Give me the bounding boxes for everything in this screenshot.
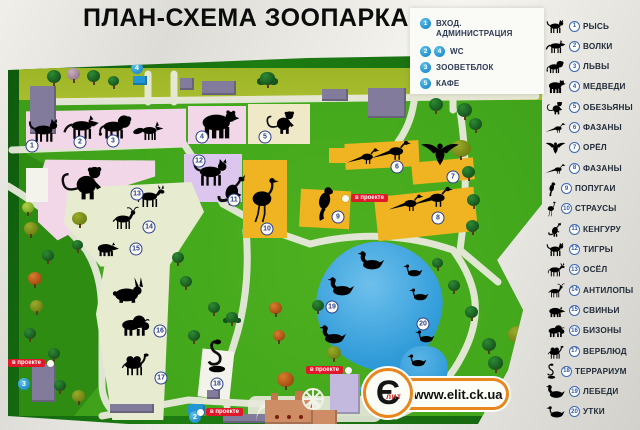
facilities-row-entrance: 1 ВХОД. АДМИНИСТРАЦИЯ — [420, 18, 520, 39]
facility-number-badge: 3 — [420, 62, 431, 73]
tree-icon — [273, 330, 285, 341]
legend-row: 19ЛЕБЕДИ — [545, 384, 639, 400]
tree-icon — [467, 194, 480, 206]
bush-icon — [260, 72, 275, 85]
tree-icon — [87, 70, 100, 82]
tree-icon — [188, 330, 200, 341]
eagle-icon — [545, 140, 566, 155]
building — [322, 89, 348, 101]
map-marker-animal-15: 15 — [130, 243, 143, 256]
legend-row: 17ВЕРБЛЮД — [545, 343, 639, 359]
project-dot-icon — [345, 367, 352, 374]
map-eagle-icon — [420, 140, 460, 166]
tree-icon — [172, 252, 184, 263]
tree-icon — [277, 372, 294, 387]
map-fox-icon — [132, 120, 164, 142]
tree-icon — [72, 390, 85, 402]
legend-row: 16БИЗОНЫ — [545, 323, 639, 339]
duck-icon — [545, 404, 566, 419]
facilities-row-zoovet: 3 ЗООВЕТБЛОК — [420, 62, 520, 73]
tree-icon — [432, 258, 443, 268]
map-marker-animal-9: 9 — [332, 211, 345, 224]
pheasant-icon — [545, 120, 566, 135]
legend-row: 7ОРЁЛ — [545, 140, 639, 156]
tree-icon — [457, 103, 472, 117]
tree-icon — [448, 280, 460, 291]
legend-row: 1РЫСЬ — [545, 18, 639, 34]
building — [368, 88, 406, 118]
map-marker-animal-14: 14 — [143, 221, 156, 234]
tree-icon — [47, 70, 61, 83]
map-marker-animal-1: 1 — [26, 140, 39, 153]
snake-icon — [545, 363, 558, 379]
tiger-icon — [545, 242, 566, 257]
zoo-map-sign-photo: ПЛАН-СХЕМА ЗООПАРКА — [0, 0, 640, 430]
facility-number-badge: 2 — [420, 46, 431, 57]
legend-row: 4МЕДВЕДИ — [545, 79, 639, 95]
map-marker-animal-11: 11 — [228, 194, 241, 207]
lynx-icon — [545, 19, 566, 34]
antelope-icon — [545, 283, 566, 298]
swan-icon — [545, 384, 566, 399]
map-swan-icon — [356, 250, 386, 271]
project-label: в проекте — [306, 366, 352, 374]
legend-row: 3ЛЬВЫ — [545, 59, 639, 75]
project-dot-icon — [342, 195, 349, 202]
tree-icon — [269, 302, 282, 314]
tree-icon — [488, 356, 503, 370]
tree-icon — [28, 272, 42, 285]
donkey-icon — [545, 262, 566, 277]
legend-row: 14АНТИЛОПЫ — [545, 282, 639, 298]
map-marker-animal-3: 3 — [107, 135, 120, 148]
map-pheasant-icon — [370, 138, 412, 161]
tree-icon — [30, 300, 43, 312]
pig-icon — [545, 303, 566, 318]
tree-icon — [24, 328, 36, 339]
map-marker-animal-7: 7 — [447, 171, 460, 184]
ostrich-icon — [545, 201, 558, 217]
bison-icon — [545, 323, 566, 338]
tree-icon — [465, 306, 478, 318]
project-label: в проекте — [342, 194, 388, 202]
tree-icon — [327, 346, 341, 359]
project-dot-icon — [47, 360, 54, 367]
page-title: ПЛАН-СХЕМА ЗООПАРКА — [36, 4, 456, 33]
tree-icon — [208, 302, 220, 313]
building — [110, 404, 154, 413]
map-swan-icon — [318, 324, 348, 345]
map-marker-animal-8: 8 — [432, 212, 445, 225]
map-bison-icon — [116, 312, 152, 337]
map-marker-animal-2: 2 — [74, 136, 87, 149]
map-marker-animal-12: 12 — [193, 155, 206, 168]
map-ostrich-icon — [248, 176, 280, 224]
facility-number-badge: 4 — [434, 46, 445, 57]
tree-icon — [429, 98, 443, 111]
project-dot-icon — [197, 409, 204, 416]
map-swan-icon — [326, 276, 356, 297]
map-marker-animal-17: 17 — [155, 372, 168, 385]
parrot-icon — [545, 181, 558, 197]
map-marker-animal-18: 18 — [211, 378, 224, 391]
tree-icon — [462, 166, 475, 178]
map-marker-animal-6: 6 — [391, 161, 404, 174]
map-marker-animal-5: 5 — [259, 131, 272, 144]
map-monkey-icon — [264, 108, 300, 135]
animals-legend: 1РЫСЬ 2ВОЛКИ 3ЛЬВЫ 4МЕДВЕДИ 5ОБЕЗЬЯНЫ 6Ф… — [545, 18, 639, 420]
tree-icon — [508, 326, 528, 343]
legend-row: 12ТИГРЫ — [545, 241, 639, 257]
map-duck-icon — [414, 328, 436, 344]
tree-icon — [67, 68, 80, 80]
tree-icon — [482, 338, 496, 351]
facilities-legend: 1 ВХОД. АДМИНИСТРАЦИЯ 2 4 WC 3 ЗООВЕТБЛО… — [410, 8, 544, 94]
map-marker-facility-3: 3 — [18, 378, 30, 390]
legend-row: 2ВОЛКИ — [545, 38, 639, 54]
bear-icon — [545, 79, 566, 94]
map-marker-animal-20: 20 — [417, 318, 430, 331]
facilities-row-cafe: 5 КАФЕ — [420, 78, 520, 89]
tree-icon — [72, 212, 87, 225]
map-monkey-large-icon — [58, 162, 110, 201]
pheasant-icon — [545, 161, 566, 176]
legend-row: 6ФАЗАНЫ — [545, 120, 639, 136]
map-camel-icon — [118, 350, 152, 376]
project-label: в проекте — [197, 408, 243, 416]
legend-row: 20УТКИ — [545, 404, 639, 420]
legend-row: 9ПОПУГАИ — [545, 181, 639, 197]
facility-number-badge: 1 — [420, 18, 431, 29]
map-marker-animal-10: 10 — [261, 223, 274, 236]
zoovet-building — [32, 364, 56, 402]
project-label: в проекте — [8, 359, 54, 367]
legend-row: 15СВИНЬИ — [545, 302, 639, 318]
watermark-url: www.elit.ck.ua — [413, 387, 502, 402]
enclosure-small-left — [26, 168, 48, 202]
map-marker-animal-19: 19 — [326, 301, 339, 314]
bush-icon — [226, 312, 238, 323]
wc-building-top — [133, 76, 147, 85]
legend-row: 10СТРАУСЫ — [545, 201, 639, 217]
map-marker-animal-13: 13 — [131, 188, 144, 201]
map-marker-facility-4: 4 — [131, 62, 143, 74]
map-marker-animal-16: 16 — [154, 325, 167, 338]
legend-row: 5ОБЕЗЬЯНЫ — [545, 99, 639, 115]
ferris-wheel-icon — [299, 386, 327, 414]
map-snake-icon — [204, 338, 230, 373]
legend-row: 8ФАЗАНЫ — [545, 160, 639, 176]
tree-icon — [24, 222, 38, 235]
kangaroo-icon — [545, 222, 566, 237]
tree-icon — [469, 118, 482, 130]
legend-row: 18ТЕРРАРИУМ — [545, 363, 639, 379]
legend-row: 11КЕНГУРУ — [545, 221, 639, 237]
wolf-icon — [545, 39, 566, 54]
facility-number-badge: 5 — [420, 78, 431, 89]
map-antelope-icon — [108, 206, 140, 230]
tree-icon — [180, 276, 192, 287]
legend-row: 13ОСЁЛ — [545, 262, 639, 278]
tree-icon — [54, 380, 66, 391]
elit-logo-icon: Є лит — [363, 368, 413, 418]
map-duck-icon — [402, 262, 424, 278]
tree-icon — [108, 76, 119, 86]
monkey-icon — [545, 100, 566, 115]
tree-icon — [22, 202, 34, 213]
map-rabbit-icon — [108, 274, 148, 303]
camel-icon — [545, 344, 566, 359]
building — [202, 81, 236, 95]
tree-icon — [48, 348, 60, 359]
map-marker-animal-4: 4 — [196, 131, 209, 144]
tree-icon — [42, 250, 54, 261]
tree-icon — [312, 300, 324, 311]
map-duck-icon — [406, 352, 428, 368]
lion-icon — [545, 59, 566, 74]
facilities-row-wc: 2 4 WC — [420, 46, 534, 57]
cafe-building — [330, 374, 360, 414]
building — [180, 78, 194, 90]
map-pig-icon — [92, 238, 120, 257]
map-duck-icon — [408, 286, 430, 302]
tree-icon — [466, 220, 479, 232]
tree-icon — [72, 240, 83, 250]
zoo-map: 1 2 3 4 5 6 7 8 9 10 11 12 13 14 15 16 1… — [8, 54, 542, 424]
map-pheasant-icon — [410, 184, 454, 208]
building — [207, 390, 220, 399]
